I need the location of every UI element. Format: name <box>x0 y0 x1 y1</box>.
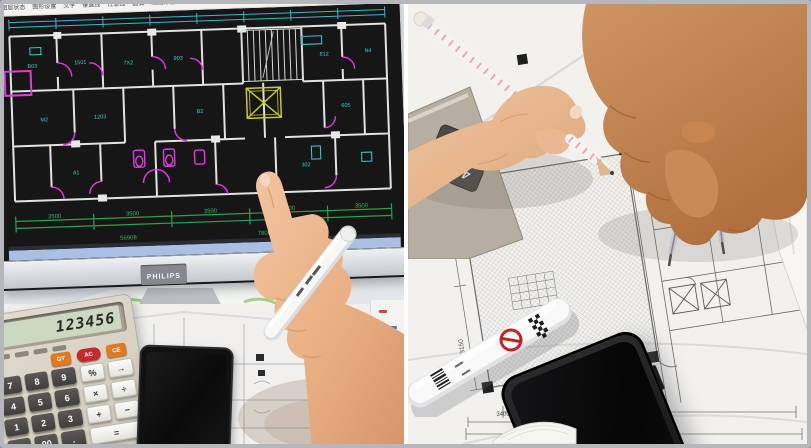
room-label: 605 <box>341 103 350 109</box>
room-label: M2 <box>40 117 48 123</box>
room-label: 812 <box>319 51 328 57</box>
dim-value: 3500 <box>126 211 140 217</box>
cad-menu-item: 标注设置 <box>182 4 206 6</box>
calculator-key: . <box>61 429 87 444</box>
cad-menu-item: 垂直线 <box>82 4 100 9</box>
cad-menu-item: 隐藏标注 <box>151 4 175 7</box>
dim-value: 3500 <box>48 214 62 220</box>
calculator-key: ÷ <box>111 378 138 399</box>
calculator-key: 1 <box>4 417 29 437</box>
calculator-key: 4 <box>4 396 26 416</box>
calculator: 123456 GTACCE 789456123000. %→×÷+−= <box>4 293 156 444</box>
calculator-key: CE <box>105 342 127 358</box>
cad-menu-item: 图形设置 <box>32 4 56 11</box>
right-photo-drafting-scene: 2000 3150 9000 10700 3400 <box>408 4 807 444</box>
calculator-key: × <box>82 383 109 404</box>
room-label: B2 <box>197 109 204 115</box>
calculator-key: 2 <box>31 412 57 432</box>
photo-collage: 图层状态图形设置文字垂直线任意线圆弧隐藏标注标注设置比例文字查找屏幕缩放打印编号… <box>0 0 811 448</box>
hand-with-compass <box>548 4 807 289</box>
room-label: N4 <box>364 48 371 54</box>
cad-menu-item: 文字 <box>63 4 75 10</box>
calculator-key: 9 <box>51 367 77 387</box>
calculator-key: → <box>107 358 134 379</box>
philips-logo: PHILIPS <box>140 264 187 286</box>
calculator-number-pad: 789456123000. <box>4 367 86 444</box>
calculator-key: 6 <box>54 387 80 407</box>
calculator-key: + <box>85 404 112 425</box>
calculator-key: GT <box>50 351 72 367</box>
cad-menu-item: 图层状态 <box>4 4 25 12</box>
cad-menu-item: 圆弧 <box>132 4 144 7</box>
calculator-key: 3 <box>58 408 84 428</box>
paper-roll <box>488 409 578 444</box>
calculator-key: 00 <box>34 433 60 444</box>
room-label: 903 <box>174 56 183 62</box>
room-label: B03 <box>27 64 37 70</box>
left-photo-cad-monitor-scene: 图层状态图形设置文字垂直线任意线圆弧隐藏标注标注设置比例文字查找屏幕缩放打印编号… <box>4 4 404 444</box>
room-label: A1 <box>73 170 80 176</box>
room-label: 1203 <box>94 114 106 120</box>
calculator-key: 8 <box>24 371 50 391</box>
calculator-key: 0 <box>7 437 33 444</box>
cad-menu-item: 任意线 <box>107 4 125 8</box>
room-label: 1501 <box>74 60 86 66</box>
room-label: 7X2 <box>123 60 133 66</box>
calculator-key: % <box>79 362 106 383</box>
calculator-operator-pad: %→×÷+−= <box>79 358 144 444</box>
calculator-key: 5 <box>27 392 53 412</box>
calculator-key: AC <box>76 346 102 363</box>
pointing-hand <box>208 148 404 444</box>
calculator-key: 7 <box>4 375 23 395</box>
dim-total: 56908 <box>120 235 138 242</box>
monitor-brand-text: PHILIPS <box>147 273 181 281</box>
